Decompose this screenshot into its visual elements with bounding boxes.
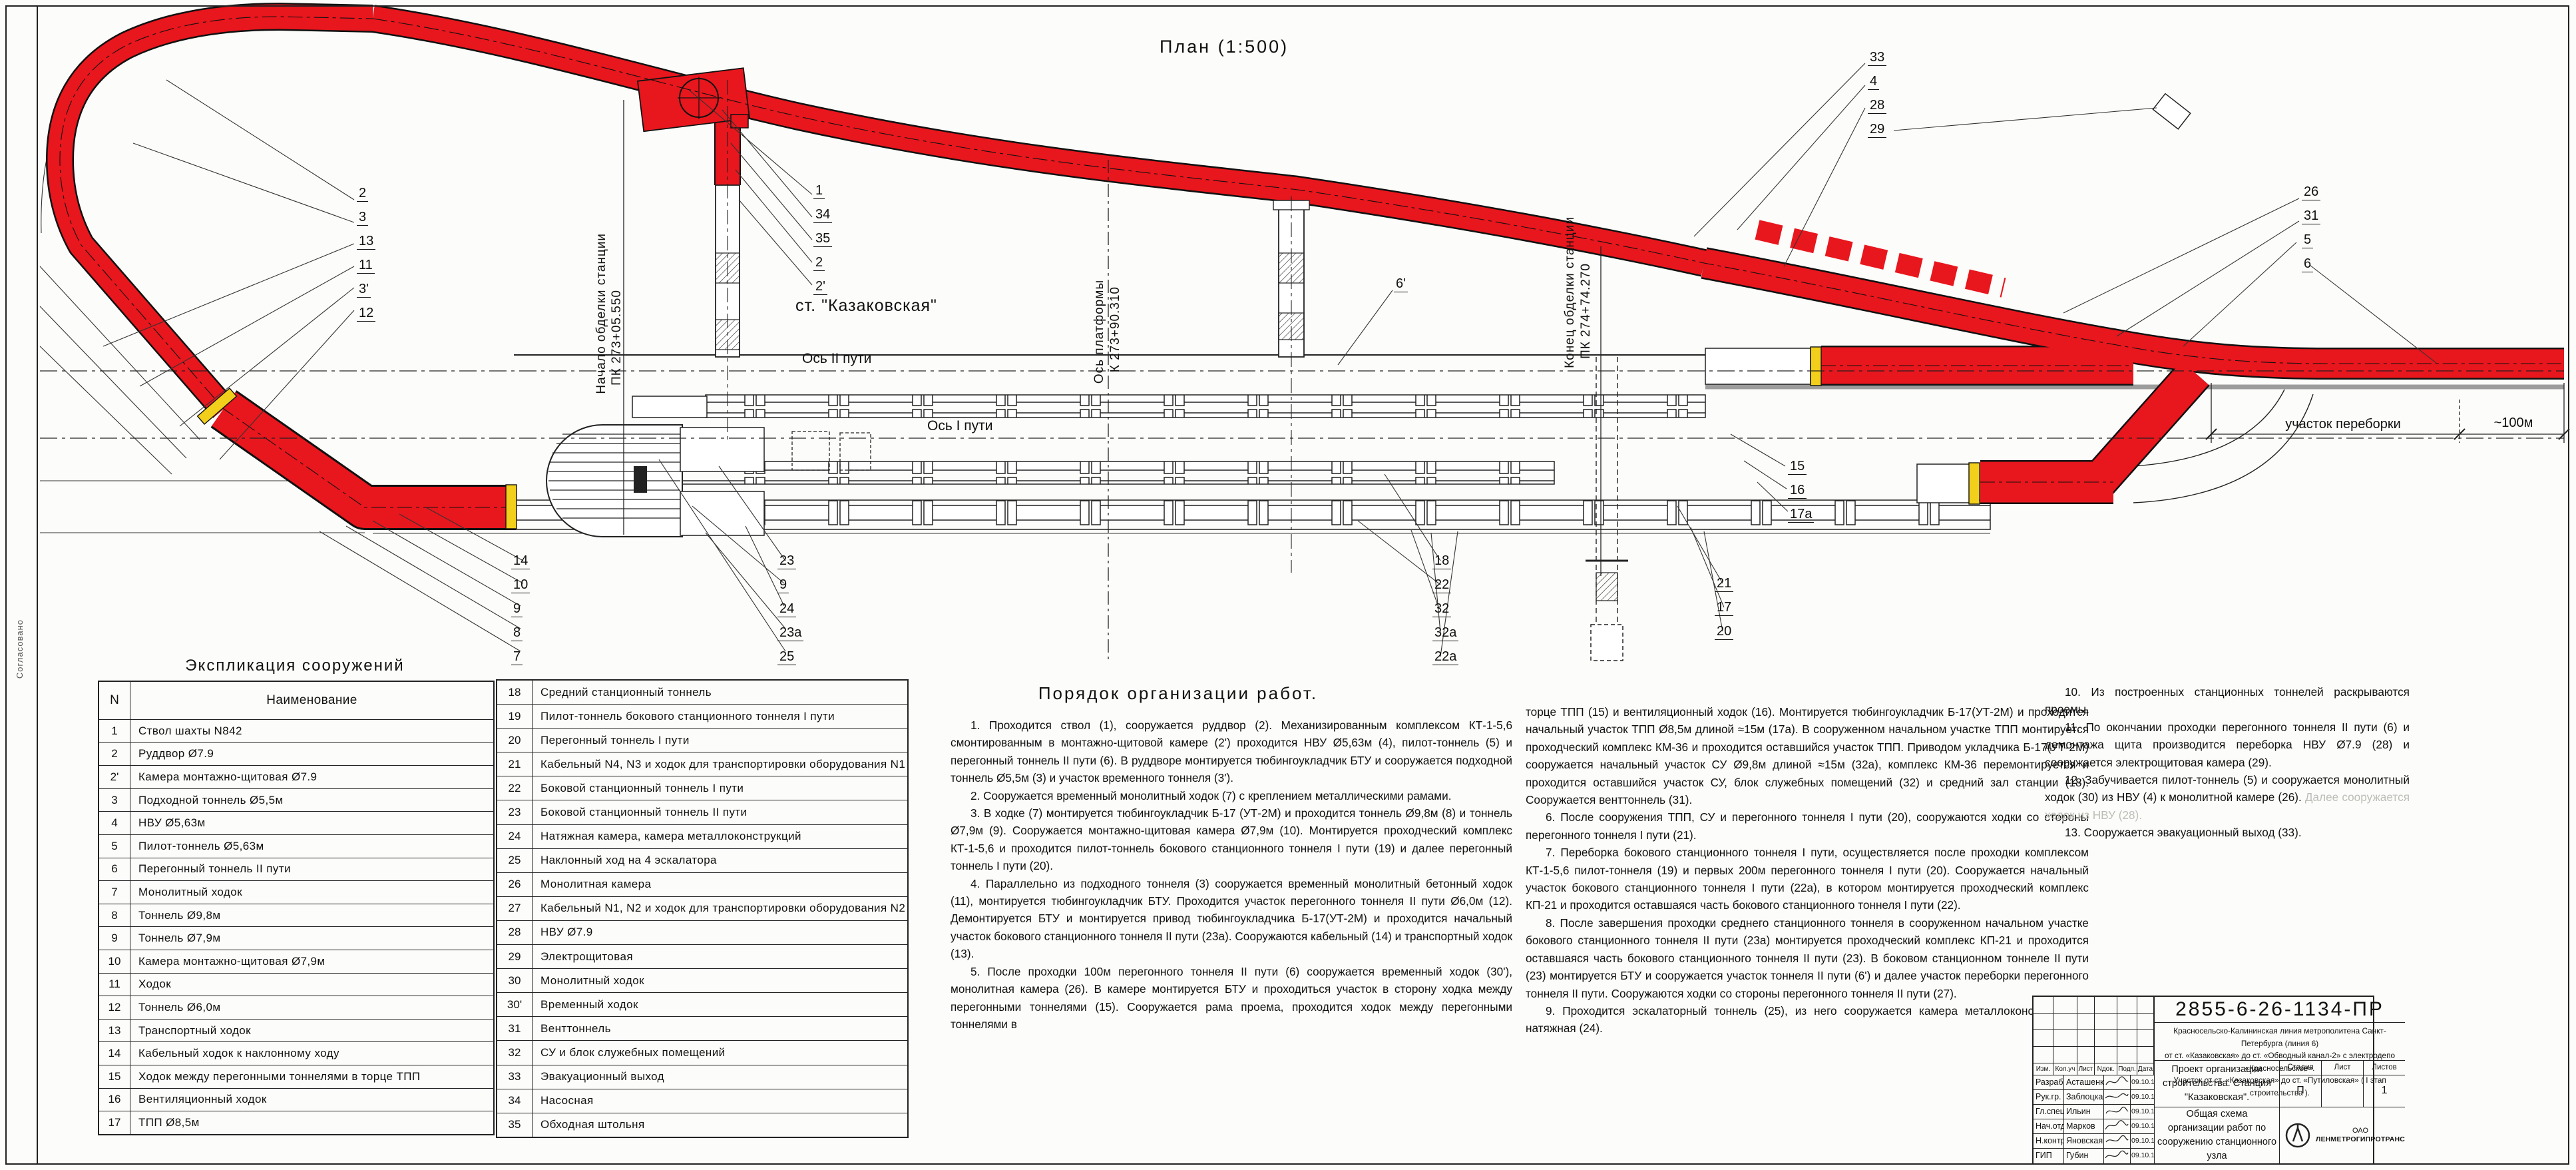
signature-grid: Изм. Кол.уч Лист Nдок. Подп. Дата Разраб… [2034,997,2155,1163]
stage-grid: Стадия Лист Листов П 1 [2280,1061,2405,1107]
work-order-col-3: 10. Из построенных станционных тоннелей … [2045,683,2410,842]
callout-stack-bottom-a: 14 10 9 8 7 [511,554,530,674]
work-order-paragraph: 11. По окончании проходки перегонного то… [2045,719,2410,771]
callout-number: 12 [357,306,375,322]
callout-stack-shaft: 1 34 35 2 2' [813,184,832,304]
table-row: 18Средний станционный тоннель [497,681,907,705]
work-order-paragraph: 1. Проходится ствол (1), сооружается руд… [951,717,1512,787]
explication-title: Экспликация сооружений [98,657,492,675]
signature-row: ГИП Губин 09.10.13 [2034,1149,2154,1163]
work-order-paragraph: 13. Сооружается эвакуационный выход (33)… [2045,824,2410,841]
lining-end-label: Конец обделки станции [1563,216,1578,368]
lenmetrogiprotrans-logo [2284,1121,2312,1149]
axis-2-label: Ось II пути [802,351,871,367]
callout-stack-bottom-d: 21 17 20 [1715,577,1733,649]
sheet-title: Общая схема организации работ по сооруже… [2155,1107,2279,1163]
callout-stack-bottom-c: 18 22 32 32а 22а [1432,554,1458,674]
table-row: 35Обходная штольня [497,1113,907,1137]
margin-agreed-label: Согласовано [15,619,25,679]
table-row: 15Ходок между перегонными тоннелями в то… [99,1065,493,1089]
table-row: 22Боковой станционный тоннель I пути [497,776,907,800]
table-row: 2'Камера монтажно-щитовая Ø7.9 [99,766,493,789]
sheet-value [2322,1075,2364,1107]
company-cell: ОАО ЛЕНМЕТРОГИПРОТРАНС [2280,1107,2405,1163]
callout-number: 20 [1715,625,1733,640]
table-row: 29Электрощитовая [497,945,907,969]
callout-number: 15 [1788,459,1807,475]
table-row: 25Наклонный ход на 4 эскалатора [497,849,907,873]
table-row: 10Камера монтажно-щитовая Ø7,9м [99,950,493,974]
callout-number: 22 [1432,578,1451,593]
table-row: 5Пилот-тоннель Ø5,63м [99,835,493,858]
table-row: 32СУ и блок служебных помещений [497,1041,907,1065]
table-row: 26Монолитная камера [497,873,907,897]
work-order-paragraph: 8. После завершения проходки среднего ст… [1526,914,2089,1002]
revision-header: Изм. Кол.уч Лист Nдок. Подп. Дата [2034,1063,2154,1075]
table-row: 24Натяжная камера, камера металлоконстру… [497,825,907,849]
explication-table-2: 18Средний станционный тоннель 19Пилот-то… [496,679,909,1138]
callout-number: 13 [357,234,375,250]
revision-grid [2034,997,2154,1063]
callout-number: 29 [1868,123,1886,138]
table-row: 30'Временный ходок [497,993,907,1017]
work-order-paragraph: 3. В ходке (7) монтируется тюбингоукладч… [951,804,1512,875]
col-header-num: N [99,682,130,719]
sheet-inner-frame [37,5,38,1165]
callout-number: 8 [511,626,523,641]
axis-1-label: Ось I пути [927,418,993,434]
table-row: 4НВУ Ø5,63м [99,812,493,835]
callout-number: 6' [1394,277,1408,292]
work-order-col-1: 1. Проходится ствол (1), сооружается руд… [951,717,1512,1033]
table-row: 16Вентиляционный ходок [99,1089,493,1112]
platform-axis-pk: К 273+90.310 [1108,286,1123,372]
work-order-paragraph: 9. Проходится эскалаторный тоннель (25),… [1526,1002,2089,1037]
callout-number: 9 [777,578,789,593]
callout-number: 14 [511,554,530,569]
work-order-title: Порядок организации работ. [992,683,1365,704]
signature-scribble [2104,1090,2131,1104]
table-row: 21Кабельный N4, N3 и ходок для транспорт… [497,752,907,776]
signature-row: Гл.спец. Ильин 09.10.13 [2034,1105,2154,1119]
stage-value: П [2280,1075,2322,1107]
table-row: 28НВУ Ø7.9 [497,921,907,945]
callout-number: 35 [813,232,832,247]
work-order-paragraph: 7. Переборка бокового станционного тонне… [1526,844,2089,914]
callout-number: 23 [777,554,796,569]
signature-row: Н.контр. Яновская 09.10.13 [2034,1134,2154,1149]
object-title: Проект организации строительства. Станци… [2155,1061,2279,1107]
callout-number: 16 [1788,483,1807,499]
rework-length-label: ~100м [2467,416,2560,431]
signature-scribble [2104,1149,2131,1163]
work-order-paragraph: 12. Забучивается пилот-тоннель (5) и соо… [2045,771,2410,824]
table-row: 2Руддвор Ø7.9 [99,743,493,766]
callout-number: 24 [777,602,796,617]
table-row: 30Монолитный ходок [497,969,907,993]
callout-number: 9 [511,602,523,617]
work-order-col-2: торце ТПП (15) и вентиляционный ходок (1… [1526,703,2089,1037]
callout-number: 3' [357,282,371,298]
plan-title: План (1:500) [1160,37,1289,57]
callout-number: 23а [777,626,803,641]
callout-number: 25 [777,650,796,665]
callout-number: 10 [511,578,530,593]
platform-axis-label: Ось платформы [1092,280,1107,384]
table-row: 3Подходной тоннель Ø5,5м [99,789,493,812]
table-row: 17ТПП Ø8,5м [99,1111,493,1134]
signature-scribble [2104,1105,2131,1119]
table-row: 7Монолитный ходок [99,881,493,904]
signature-scribble [2104,1119,2131,1133]
work-order-paragraph: 2. Сооружается временный монолитный ходо… [951,787,1512,804]
callout-number: 3 [357,210,368,226]
work-order-paragraph: 10. Из построенных станционных тоннелей … [2045,683,2410,719]
callout-stack-mid-right: 15 16 17а [1788,459,1814,531]
callout-number: 31 [2302,209,2320,224]
work-order-paragraph: 4. Параллельно из подходного тоннеля (3)… [951,875,1512,963]
callout-single-6p: 6' [1394,277,1408,301]
callout-stack-left: 2 3 13 11 3' 12 [357,186,375,330]
table-row: 23Боковой станционный тоннель II пути [497,800,907,824]
table-header: N Наименование [99,682,493,720]
callout-number: 1 [813,184,825,199]
drawing-sheet: Согласовано План (1:500) ст. "Казаковска… [0,0,2576,1170]
table-row: 34Насосная [497,1089,907,1113]
lining-end-pk: ПК 274+74.270 [1579,263,1594,359]
table-row: 8Тоннель Ø9,8м [99,904,493,928]
callout-number: 32 [1432,602,1451,617]
signature-row: Рук.гр. Заблоцкая 09.10.13 [2034,1090,2154,1105]
sheets-value: 1 [2364,1075,2405,1107]
callout-number: 18 [1432,554,1451,569]
table-row: 1Ствол шахты N842 [99,720,493,743]
table-row: 11Ходок [99,974,493,997]
explication-table-1: N Наименование 1Ствол шахты N842 2Руддво… [98,681,495,1135]
table-row: 13Транспортный ходок [99,1020,493,1043]
work-order-paragraph: торце ТПП (15) и вентиляционный ходок (1… [1526,703,2089,808]
table-row: 20Перегонный тоннель I пути [497,729,907,752]
callout-number: 11 [357,258,375,274]
callout-number: 2 [813,256,825,271]
callout-number: 33 [1868,51,1886,66]
table-row: 14Кабельный ходок к наклонному ходу [99,1042,493,1065]
callout-number: 34 [813,208,832,223]
callout-number: 4 [1868,75,1879,90]
callout-stack-bottom-b: 23 9 24 23а 25 [777,554,803,674]
signature-scribble [2104,1075,2131,1089]
callout-number: 17а [1788,507,1814,523]
callout-number: 5 [2302,233,2313,248]
signature-row: Разраб. Асташенкова 09.10.13 [2034,1075,2154,1090]
callout-number: 6 [2302,257,2313,272]
table-row: 19Пилот-тоннель бокового станционного то… [497,705,907,729]
callout-stack-right: 26 31 5 6 [2302,185,2320,281]
callout-number: 22а [1432,650,1458,665]
col-header-name: Наименование [130,682,493,719]
callout-number: 17 [1715,601,1733,616]
callout-number: 21 [1715,577,1733,592]
work-order-paragraph: 5. После проходки 100м перегонного тонне… [951,963,1512,1033]
table-row: 9Тоннель Ø7,9м [99,927,493,950]
table-row: 31Венттоннель [497,1017,907,1041]
callout-number: 28 [1868,99,1886,114]
signature-scribble [2104,1134,2131,1148]
table-row: 33Эвакуационный выход [497,1065,907,1089]
table-row: 27Кабельный N1, N2 и ходок для транспорт… [497,897,907,921]
table-row: 6Перегонный тоннель II пути [99,858,493,882]
project-description: Красносельско-Калининская линия метропол… [2155,1023,2405,1061]
work-order-paragraph: 6. После сооружения ТПП, СУ и перегонног… [1526,808,2089,844]
callout-stack-top-right: 33 4 28 29 [1868,51,1886,146]
callout-number: 2' [813,280,827,295]
table-row: 12Тоннель Ø6,0м [99,996,493,1020]
callout-number: 26 [2302,185,2320,200]
title-block: Изм. Кол.уч Лист Nдок. Подп. Дата Разраб… [2032,996,2374,1165]
callout-number: 2 [357,186,368,202]
document-number: 2855-6-26-1134-ПР [2155,997,2405,1023]
lining-start-label: Начало обделки станции [594,233,609,394]
signature-row: Нач.отд. Марков 09.10.13 [2034,1119,2154,1134]
lining-start-pk: ПК 273+05.550 [610,290,624,386]
callout-number: 7 [511,650,523,665]
callout-number: 32а [1432,626,1458,641]
rework-section-label: участок переборки [2250,417,2436,432]
